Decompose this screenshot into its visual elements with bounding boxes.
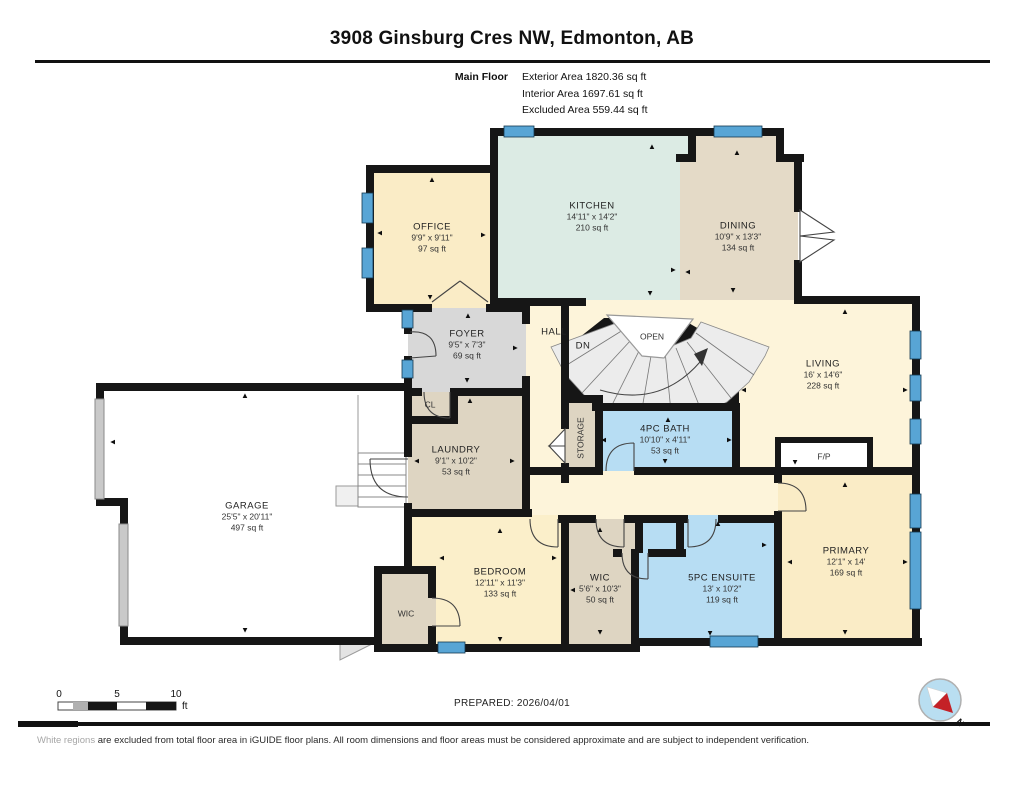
dining-french-doors	[800, 210, 834, 262]
room-label-closet: CL	[425, 399, 436, 410]
camera-arrow-icon: ▲	[786, 558, 794, 566]
camera-arrow-icon: ▲	[463, 376, 471, 384]
room-label-wic-primary: WIC 5'6" x 10'3" 50 sq ft	[579, 572, 621, 605]
room-dims: 13' x 10'2"	[688, 583, 756, 594]
foyer-window	[402, 310, 413, 328]
camera-arrow-icon: ▲	[684, 268, 692, 276]
camera-arrow-icon: ▲	[791, 458, 799, 466]
living-window	[910, 331, 921, 359]
room-dims: 10'10" x 4'11"	[640, 434, 691, 445]
room-area: 53 sq ft	[432, 467, 481, 478]
floor-plan-sheet: 3908 Ginsburg Cres NW, Edmonton, AB Main…	[0, 0, 1024, 791]
room-name: HALL	[541, 327, 567, 338]
room-name: 5PC ENSUITE	[688, 572, 756, 583]
room-area: 50 sq ft	[579, 595, 621, 606]
room-name: OPEN	[640, 331, 664, 342]
room-name: F/P	[817, 451, 830, 462]
camera-arrow-icon: ▲	[479, 231, 487, 239]
camera-arrow-icon: ▲	[664, 416, 672, 424]
fireplace-label: F/P	[817, 451, 830, 462]
camera-arrow-icon: ▲	[496, 635, 504, 643]
room-name: FOYER	[448, 328, 485, 339]
camera-arrow-icon: ▲	[426, 293, 434, 301]
room-area: 497 sq ft	[222, 523, 273, 534]
room-dims: 9'1" x 10'2"	[432, 455, 481, 466]
room-label-bedroom: BEDROOM 12'11" x 11'3" 133 sq ft	[474, 566, 527, 599]
room-area: 169 sq ft	[823, 568, 870, 579]
kitchen-window	[504, 126, 534, 137]
disclaimer-body: are excluded from total floor area in iG…	[95, 735, 809, 746]
camera-arrow-icon: ▲	[376, 229, 384, 237]
room-name: LAUNDRY	[432, 444, 481, 455]
office-window	[362, 193, 373, 223]
camera-arrow-icon: ▲	[729, 286, 737, 294]
camera-arrow-icon: ▲	[508, 457, 516, 465]
room-name: STORAGE	[575, 417, 586, 458]
camera-arrow-icon: ▲	[714, 520, 722, 528]
room-area: 69 sq ft	[448, 351, 485, 362]
room-area: 210 sq ft	[567, 223, 618, 234]
camera-arrow-icon: ▲	[661, 457, 669, 465]
room-name: DN	[576, 341, 591, 352]
footer-divider	[35, 722, 990, 726]
room-label-hall: HALL	[541, 327, 567, 338]
disclaimer-text: White regions are excluded from total fl…	[37, 735, 997, 746]
camera-arrow-icon: ▲	[841, 308, 849, 316]
room-label-ensuite: 5PC ENSUITE 13' x 10'2" 119 sq ft	[688, 572, 756, 605]
office-window	[362, 248, 373, 278]
foyer-window	[402, 360, 413, 378]
camera-arrow-icon: ▲	[600, 436, 608, 444]
living-window	[910, 419, 921, 444]
room-dims: 14'11" x 14'2"	[567, 211, 618, 222]
stair-open-label: OPEN	[640, 331, 664, 342]
living-window	[910, 375, 921, 401]
primary-window	[910, 532, 921, 609]
room-name: OFFICE	[411, 221, 452, 232]
camera-arrow-icon: ▲	[466, 397, 474, 405]
room-dims: 12'11" x 11'3"	[474, 577, 527, 588]
camera-arrow-icon: ▲	[841, 628, 849, 636]
room-area: 133 sq ft	[474, 589, 527, 600]
room-label-office: OFFICE 9'9" x 9'11" 97 sq ft	[411, 221, 452, 254]
camera-arrow-icon: ▲	[733, 149, 741, 157]
room-label-bath: 4PC BATH 10'10" x 4'11" 53 sq ft	[640, 423, 691, 456]
camera-arrow-icon: ▲	[596, 628, 604, 636]
camera-arrow-icon: ▲	[464, 312, 472, 320]
room-area: 53 sq ft	[640, 446, 691, 457]
camera-arrow-icon: ▲	[109, 438, 117, 446]
dining-window	[714, 126, 762, 137]
camera-arrow-icon: ▲	[646, 289, 654, 297]
camera-arrow-icon: ▲	[760, 541, 768, 549]
room-label-kitchen: KITCHEN 14'11" x 14'2" 210 sq ft	[567, 200, 618, 233]
primary-window	[910, 494, 921, 528]
room-name: PRIMARY	[823, 545, 870, 556]
camera-arrow-icon: ▲	[901, 386, 909, 394]
camera-arrow-icon: ▲	[841, 481, 849, 489]
room-label-dining: DINING 10'9" x 13'3" 134 sq ft	[715, 220, 762, 253]
ensuite-window	[710, 636, 758, 647]
room-dims: 12'1" x 14'	[823, 556, 870, 567]
camera-arrow-icon: ▲	[569, 586, 577, 594]
camera-arrow-icon: ▲	[438, 554, 446, 562]
camera-arrow-icon: ▲	[496, 527, 504, 535]
camera-arrow-icon: ▲	[669, 266, 677, 274]
room-name: WIC	[579, 572, 621, 583]
camera-arrow-icon: ▲	[648, 143, 656, 151]
camera-arrow-icon: ▲	[241, 392, 249, 400]
camera-arrow-icon: ▲	[596, 526, 604, 534]
room-label-primary: PRIMARY 12'1" x 14' 169 sq ft	[823, 545, 870, 578]
camera-arrow-icon: ▲	[550, 554, 558, 562]
room-name: DINING	[715, 220, 762, 231]
garage-stairs	[358, 453, 406, 507]
camera-arrow-icon: ▲	[740, 386, 748, 394]
room-dims: 5'6" x 10'3"	[579, 583, 621, 594]
stair-dn-label: DN	[576, 341, 591, 352]
room-dims: 25'5" x 20'11"	[222, 511, 273, 522]
room-label-wic-bedroom: WIC	[398, 608, 415, 619]
camera-arrow-icon: ▲	[706, 629, 714, 637]
camera-arrow-icon: ▲	[241, 626, 249, 634]
header-divider	[35, 60, 990, 63]
room-area: 97 sq ft	[411, 244, 452, 255]
room-label-laundry: LAUNDRY 9'1" x 10'2" 53 sq ft	[432, 444, 481, 477]
floor-plan-drawing: N	[0, 0, 1024, 791]
bedroom-window	[438, 642, 465, 653]
room-dims: 9'9" x 9'11"	[411, 232, 452, 243]
room-name: LIVING	[804, 358, 843, 369]
room-name: GARAGE	[222, 500, 273, 511]
room-label-garage: GARAGE 25'5" x 20'11" 497 sq ft	[222, 500, 273, 533]
camera-arrow-icon: ▲	[901, 558, 909, 566]
room-label-living: LIVING 16' x 14'6" 228 sq ft	[804, 358, 843, 391]
room-area: 119 sq ft	[688, 595, 756, 606]
room-dims: 10'9" x 13'3"	[715, 231, 762, 242]
room-name: KITCHEN	[567, 200, 618, 211]
room-name: WIC	[398, 608, 415, 619]
camera-arrow-icon: ▲	[413, 457, 421, 465]
room-name: BEDROOM	[474, 566, 527, 577]
room-area: 134 sq ft	[715, 243, 762, 254]
camera-arrow-icon: ▲	[428, 176, 436, 184]
room-dims: 9'5" x 7'3"	[448, 339, 485, 350]
room-name: 4PC BATH	[640, 423, 691, 434]
camera-arrow-icon: ▲	[511, 344, 519, 352]
camera-arrow-icon: ▲	[725, 436, 733, 444]
room-label-foyer: FOYER 9'5" x 7'3" 69 sq ft	[448, 328, 485, 361]
room-name: CL	[425, 399, 436, 410]
prepared-date: PREPARED: 2026/04/01	[0, 698, 1024, 709]
room-dims: 16' x 14'6"	[804, 369, 843, 380]
disclaimer-highlight: White regions	[37, 735, 95, 746]
room-area: 228 sq ft	[804, 381, 843, 392]
room-label-storage: STORAGE	[575, 417, 586, 458]
